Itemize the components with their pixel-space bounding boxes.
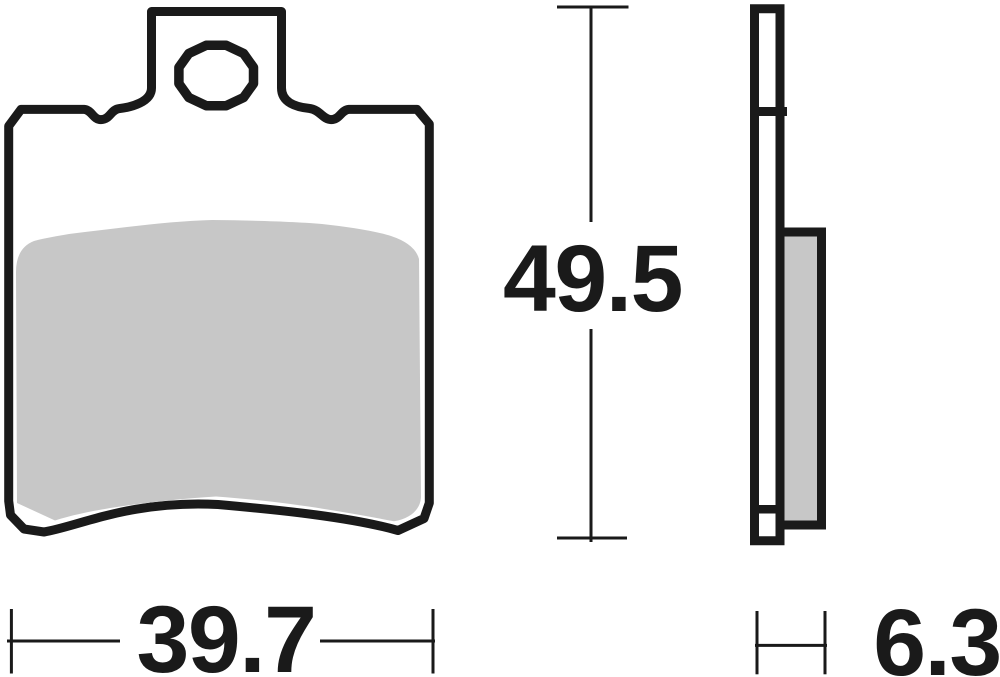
svg-text:6.3: 6.3 bbox=[873, 590, 1000, 677]
svg-text:39.7: 39.7 bbox=[137, 587, 316, 677]
svg-text:49.5: 49.5 bbox=[503, 226, 682, 332]
